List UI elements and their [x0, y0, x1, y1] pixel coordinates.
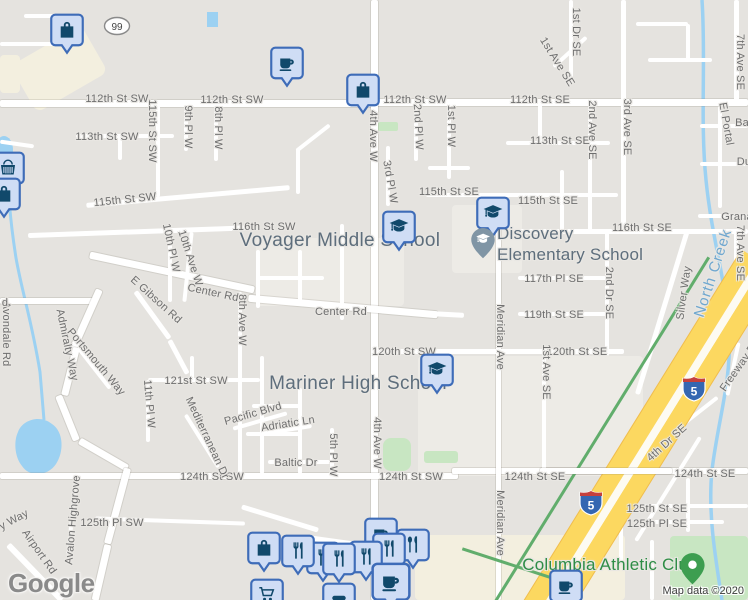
road-segment: [636, 22, 688, 26]
road-segment: [78, 438, 129, 472]
road-segment: [148, 378, 260, 382]
map-canvas[interactable]: Google Map data ©2020 112th St SW112th S…: [0, 0, 748, 600]
road-segment: [95, 516, 245, 525]
road-segment: [252, 404, 300, 408]
road-segment: [66, 480, 78, 555]
road-segment: [700, 162, 748, 166]
coffee-cup-marker[interactable]: [269, 45, 305, 94]
street-label: 2nd Pl W: [411, 104, 425, 151]
road-segment: [184, 103, 188, 151]
road-segment: [296, 148, 300, 194]
road-segment: [686, 478, 690, 532]
svg-text:5: 5: [588, 499, 595, 513]
shopping-bag-marker[interactable]: [246, 530, 282, 579]
park-icon: [688, 561, 697, 570]
road-segment: [76, 134, 174, 138]
road-segment: [496, 228, 501, 600]
map-attribution: Map data ©2020: [663, 585, 745, 597]
road-segment: [238, 292, 242, 476]
coffee-cup-marker[interactable]: [548, 568, 584, 600]
road-segment: [518, 276, 610, 280]
road-segment: [542, 353, 546, 471]
road-segment: [718, 106, 722, 208]
road-segment: [330, 428, 334, 478]
road-segment: [506, 141, 610, 145]
road-segment: [167, 339, 189, 375]
svg-text:5: 5: [691, 385, 698, 399]
road-segment: [89, 252, 255, 294]
street-label: Avondale Rd: [0, 302, 12, 367]
road-segment: [260, 356, 264, 474]
road-segment: [184, 414, 220, 469]
interstate-5-shield: 5: [579, 490, 603, 521]
grocery-cart-marker[interactable]: [249, 577, 285, 600]
road-segment: [256, 276, 324, 280]
restaurant-marker[interactable]: [280, 533, 316, 582]
school-marker[interactable]: [381, 209, 417, 258]
road-segment: [214, 103, 218, 161]
road-segment: [698, 214, 748, 218]
road-segment: [686, 24, 690, 62]
road-segment: [168, 230, 172, 302]
school-pin-gray-marker[interactable]: [470, 227, 496, 265]
road-segment: [605, 230, 609, 356]
road-segment: [650, 540, 654, 600]
road-segment: [28, 225, 260, 238]
road-segment: [0, 298, 96, 304]
road-segment: [540, 468, 672, 474]
road-segment: [518, 229, 748, 234]
shopping-bag-marker[interactable]: [49, 12, 85, 61]
road-segment: [241, 504, 319, 532]
road-segment: [0, 100, 378, 107]
road-segment: [86, 185, 290, 208]
land-area: [383, 438, 411, 471]
road-segment: [146, 380, 150, 442]
road-segment: [61, 347, 80, 396]
road-segment: [386, 146, 390, 206]
road-segment: [700, 124, 748, 128]
road-segment: [0, 473, 458, 479]
road-segment: [560, 170, 564, 230]
svg-text:99: 99: [111, 22, 123, 33]
plate-icon: [332, 596, 346, 600]
street-label: 3rd Pl W: [380, 159, 399, 204]
street-label: y Way: [0, 507, 31, 532]
road-segment: [569, 0, 573, 84]
road-segment: [190, 356, 194, 380]
road-segment: [76, 346, 111, 389]
school-marker[interactable]: [419, 352, 455, 401]
land-area: [0, 55, 20, 93]
land-area: [378, 122, 398, 131]
road-segment: [182, 232, 193, 302]
coffee-cup-marker[interactable]: [370, 561, 412, 600]
shopping-bag-marker[interactable]: [345, 72, 381, 121]
road-segment: [118, 134, 122, 160]
road-segment: [0, 140, 34, 149]
road-segment: [518, 312, 614, 316]
land-area: [424, 451, 458, 463]
road-segment: [295, 123, 331, 152]
road-segment: [340, 224, 344, 320]
road-segment: [156, 103, 160, 197]
street-label: Mediterranean Dr: [183, 395, 231, 481]
road-segment: [538, 103, 542, 143]
road-segment: [452, 349, 624, 354]
interstate-5-shield: 5: [682, 376, 706, 407]
google-logo[interactable]: Google: [8, 568, 95, 599]
road-segment: [428, 166, 470, 170]
road-segment: [648, 58, 712, 62]
road-segment: [588, 103, 592, 231]
road-segment: [298, 388, 302, 474]
road-segment: [246, 432, 302, 436]
shopping-bag-marker[interactable]: [0, 176, 22, 225]
plate-marker[interactable]: [321, 581, 357, 600]
road-segment: [621, 0, 626, 232]
road-segment: [734, 0, 739, 104]
road-segment: [414, 103, 418, 161]
state-route-99-shield: 99: [103, 16, 131, 41]
road-segment: [55, 394, 79, 441]
road-segment: [375, 99, 748, 106]
road-segment: [133, 290, 171, 340]
